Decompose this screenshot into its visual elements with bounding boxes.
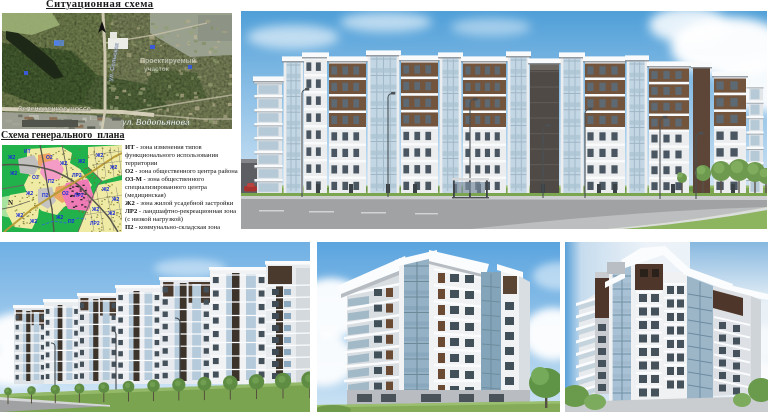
svg-text:Ж2: Ж2 <box>111 197 120 203</box>
svg-text:Ж2: Ж2 <box>55 215 64 221</box>
svg-text:Ж2: Ж2 <box>15 213 24 219</box>
svg-text:Ж2: Ж2 <box>91 207 100 213</box>
svg-text:ИТ: ИТ <box>24 149 31 155</box>
svg-text:ЛР2: ЛР2 <box>74 193 84 199</box>
svg-text:N: N <box>8 199 13 207</box>
svg-text:Ж2: Ж2 <box>29 219 38 225</box>
svg-text:участок: участок <box>144 66 170 73</box>
svg-text:О2: О2 <box>46 155 53 161</box>
svg-text:Ж2: Ж2 <box>7 155 16 161</box>
svg-text:Ж2: Ж2 <box>109 165 118 171</box>
svg-text:О2: О2 <box>62 191 69 197</box>
svg-text:Ж2: Ж2 <box>107 211 116 217</box>
svg-text:П2: П2 <box>48 179 55 185</box>
svg-text:О3: О3 <box>32 175 39 181</box>
svg-text:ЛР2: ЛР2 <box>90 221 100 227</box>
svg-text:Ж2: Ж2 <box>9 171 18 177</box>
svg-text:Зеленорецкое шоссе: Зеленорецкое шоссе <box>18 106 91 113</box>
svg-text:ЛР2: ЛР2 <box>72 173 82 179</box>
svg-text:Ж2: Ж2 <box>59 161 68 167</box>
svg-text:Ж2: Ж2 <box>101 187 110 193</box>
svg-text:П2: П2 <box>42 193 49 199</box>
svg-text:Проектируемый: Проектируемый <box>140 57 196 65</box>
svg-text:Ж2: Ж2 <box>77 159 86 165</box>
svg-text:П2: П2 <box>68 219 75 225</box>
svg-text:ул. Водопьянова: ул. Водопьянова <box>121 118 190 127</box>
svg-text:Ж2: Ж2 <box>25 191 34 197</box>
svg-text:Ж2: Ж2 <box>95 153 104 159</box>
